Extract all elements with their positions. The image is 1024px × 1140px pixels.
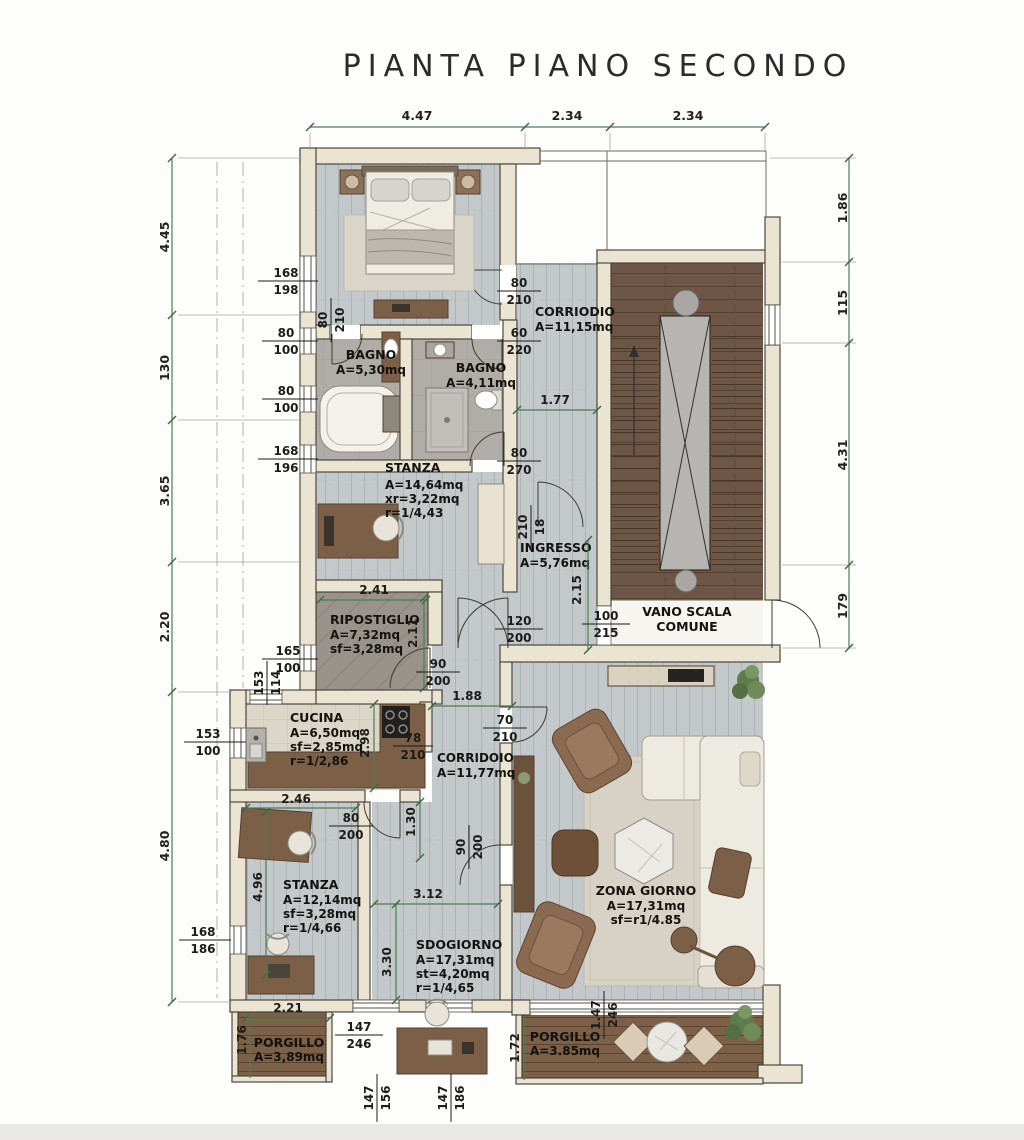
bottom-strip <box>0 1124 1024 1140</box>
wall-bagni-divider <box>400 339 412 460</box>
svg-text:1.30: 1.30 <box>404 807 418 837</box>
svg-text:1.77: 1.77 <box>540 393 570 407</box>
ottoman <box>552 830 598 876</box>
sliding-door-zona <box>530 1000 763 1012</box>
rail-p2-bottom <box>516 1078 763 1084</box>
svg-text:80: 80 <box>343 811 360 825</box>
svg-text:A=11,77mq: A=11,77mq <box>437 766 515 780</box>
floor-plan-page: PIANTA PIANO SECONDO <box>0 0 1024 1140</box>
svg-text:A=17,31mq: A=17,31mq <box>607 899 685 913</box>
svg-text:4.31: 4.31 <box>835 440 850 471</box>
svg-text:2.20: 2.20 <box>157 611 172 642</box>
svg-text:60: 60 <box>511 326 528 340</box>
toilet <box>475 390 502 410</box>
svg-text:186: 186 <box>190 942 215 956</box>
wall-left-upper <box>300 148 316 702</box>
stair-landing-dot-top <box>673 290 699 316</box>
svg-text:246: 246 <box>346 1037 371 1051</box>
wall-bagno-top-b <box>360 325 472 339</box>
svg-text:A=5,76mq: A=5,76mq <box>520 556 590 570</box>
svg-text:246: 246 <box>606 1002 620 1027</box>
soggiorno-laptop <box>428 1040 452 1055</box>
svg-text:18: 18 <box>533 519 547 536</box>
svg-text:r=1/4,65: r=1/4,65 <box>416 981 474 995</box>
svg-text:1.86: 1.86 <box>835 192 850 223</box>
room-label-zona-giorno: ZONA GIORNO A=17,31mq sf=r1/4.85 <box>596 883 696 927</box>
svg-text:179: 179 <box>835 593 850 619</box>
wall-zona-top <box>500 645 780 662</box>
svg-text:100: 100 <box>273 401 298 415</box>
wall-ripostiglio-right-a <box>428 592 442 645</box>
stanza2-laptop <box>268 964 290 978</box>
svg-text:r=1/4,43: r=1/4,43 <box>385 506 443 520</box>
svg-text:SDOGIORNO: SDOGIORNO <box>416 937 502 952</box>
svg-text:168: 168 <box>273 266 298 280</box>
window-ripostiglio <box>300 645 316 671</box>
bagno1-cabinet <box>383 396 400 432</box>
svg-text:1.76: 1.76 <box>235 1025 249 1055</box>
floor-plan-svg: PIANTA PIANO SECONDO <box>0 0 1024 1140</box>
svg-text:A=3.85mq: A=3.85mq <box>530 1044 600 1058</box>
svg-text:st=4,20mq: st=4,20mq <box>416 967 490 981</box>
svg-text:80: 80 <box>278 384 295 398</box>
shower <box>426 388 468 452</box>
svg-text:114: 114 <box>269 670 283 695</box>
svg-text:147: 147 <box>346 1020 371 1034</box>
svg-text:115: 115 <box>835 290 850 316</box>
svg-text:165: 165 <box>275 644 300 658</box>
svg-text:2.34: 2.34 <box>552 108 583 123</box>
svg-text:200: 200 <box>506 631 531 645</box>
svg-text:sf=r1/4.85: sf=r1/4.85 <box>611 913 682 927</box>
svg-text:2.46: 2.46 <box>281 792 311 806</box>
svg-text:210: 210 <box>492 730 517 744</box>
wall-right-mid <box>765 345 780 600</box>
svg-text:4.47: 4.47 <box>402 108 433 123</box>
svg-text:210: 210 <box>516 514 530 539</box>
rail-p1-right <box>326 1012 332 1082</box>
soggiorno-item <box>462 1042 474 1054</box>
svg-text:2.98: 2.98 <box>358 728 372 758</box>
wall-zona-divider-a <box>500 662 512 707</box>
wall-top <box>300 148 540 164</box>
rail-p1-bottom <box>232 1076 332 1082</box>
svg-text:80: 80 <box>316 312 330 329</box>
stanza1-wardrobe <box>478 484 504 564</box>
window-stanza2 <box>230 926 246 954</box>
svg-text:196: 196 <box>273 461 298 475</box>
room-label-porgillo1: PORGILLO A=3,89mq <box>254 1035 324 1064</box>
svg-text:sf=2,85mq: sf=2,85mq <box>290 740 363 754</box>
svg-text:PORGILLO: PORGILLO <box>530 1029 600 1044</box>
svg-text:3.12: 3.12 <box>413 887 443 901</box>
svg-text:r=1/4,66: r=1/4,66 <box>283 921 341 935</box>
wall-cucina-bottom-b <box>400 790 420 802</box>
svg-text:1.72: 1.72 <box>508 1033 522 1063</box>
svg-text:100: 100 <box>273 343 298 357</box>
svg-text:215: 215 <box>593 626 618 640</box>
svg-text:A=11,15mq: A=11,15mq <box>535 320 613 334</box>
svg-text:80: 80 <box>278 326 295 340</box>
svg-text:210: 210 <box>506 293 531 307</box>
wall-stairwell-top <box>597 250 780 263</box>
svg-text:147: 147 <box>362 1085 376 1110</box>
svg-text:70: 70 <box>497 713 514 727</box>
svg-text:153: 153 <box>195 727 220 741</box>
svg-text:90: 90 <box>454 839 468 856</box>
svg-text:2.34: 2.34 <box>673 108 704 123</box>
svg-text:r=1/2,86: r=1/2,86 <box>290 754 348 768</box>
stanza1-monitor <box>324 516 334 546</box>
svg-text:210: 210 <box>333 307 347 332</box>
bagno2-sink <box>434 344 446 356</box>
dresser-item <box>392 304 410 312</box>
svg-text:4.80: 4.80 <box>157 830 172 861</box>
svg-text:270: 270 <box>506 463 531 477</box>
svg-text:A=14,64mq: A=14,64mq <box>385 478 463 492</box>
svg-text:CORRIODIO: CORRIODIO <box>535 304 615 319</box>
svg-text:147: 147 <box>436 1085 450 1110</box>
svg-text:2.21: 2.21 <box>273 1001 303 1015</box>
svg-text:A=6,50mq: A=6,50mq <box>290 726 360 740</box>
svg-text:80: 80 <box>511 276 528 290</box>
wall-pier-left <box>512 1000 530 1015</box>
svg-text:PORGILLO: PORGILLO <box>254 1035 324 1050</box>
sideboard-plant <box>518 772 530 784</box>
window-bedroom <box>300 256 316 312</box>
svg-text:A=17,31mq: A=17,31mq <box>416 953 494 967</box>
svg-text:1.47: 1.47 <box>589 1000 603 1030</box>
svg-text:100: 100 <box>593 609 618 623</box>
svg-text:sf=3,28mq: sf=3,28mq <box>283 907 356 921</box>
svg-text:A=5,30mq: A=5,30mq <box>336 363 406 377</box>
tv <box>668 669 704 682</box>
svg-text:CORRIDOIO: CORRIDOIO <box>437 751 514 765</box>
wall-cucina-top <box>316 690 432 704</box>
svg-text:156: 156 <box>379 1085 393 1110</box>
svg-text:168: 168 <box>273 444 298 458</box>
svg-text:210: 210 <box>400 748 425 762</box>
svg-text:200: 200 <box>471 834 485 859</box>
wall-pier-foot <box>758 1065 802 1083</box>
svg-text:A=7,32mq: A=7,32mq <box>330 628 400 642</box>
svg-text:130: 130 <box>157 355 172 381</box>
svg-text:VANO SCALA: VANO SCALA <box>642 604 732 619</box>
stair-landing-dot-bottom <box>675 570 697 592</box>
svg-text:A=3,89mq: A=3,89mq <box>254 1050 324 1064</box>
kitchen-sink <box>246 728 266 762</box>
svg-text:120: 120 <box>506 614 531 628</box>
svg-text:BAGNO: BAGNO <box>346 347 397 362</box>
wall-bottom-b <box>399 1000 426 1012</box>
svg-text:168: 168 <box>190 925 215 939</box>
lamp-right <box>461 175 475 189</box>
plan-title: PIANTA PIANO SECONDO <box>343 49 854 84</box>
svg-text:78: 78 <box>405 731 422 745</box>
svg-text:A=4,11mq: A=4,11mq <box>446 376 516 390</box>
window-cucina <box>230 728 246 758</box>
svg-text:STANZA: STANZA <box>385 460 441 475</box>
svg-text:153: 153 <box>252 670 266 695</box>
svg-text:90: 90 <box>430 657 447 671</box>
dresser <box>374 300 448 318</box>
svg-text:1.88: 1.88 <box>452 689 482 703</box>
svg-text:220: 220 <box>506 343 531 357</box>
svg-text:BAGNO: BAGNO <box>456 360 507 375</box>
stair-flight-right <box>712 336 763 568</box>
svg-text:4.45: 4.45 <box>157 222 172 253</box>
room-label-porgillo2: PORGILLO A=3.85mq <box>530 1029 600 1058</box>
svg-text:198: 198 <box>273 283 298 297</box>
svg-text:ZONA GIORNO: ZONA GIORNO <box>596 883 696 898</box>
svg-text:CUCINA: CUCINA <box>290 710 344 725</box>
svg-text:3.30: 3.30 <box>380 947 394 977</box>
svg-text:xr=3,22mq: xr=3,22mq <box>385 492 459 506</box>
svg-text:80: 80 <box>511 446 528 460</box>
wall-right-upper <box>765 217 780 305</box>
window-right <box>765 305 780 345</box>
room-label-corridoio2: CORRIDOIO A=11,77mq <box>437 751 515 780</box>
svg-text:2.11: 2.11 <box>406 618 420 648</box>
svg-text:100: 100 <box>195 744 220 758</box>
svg-text:3.65: 3.65 <box>157 476 172 507</box>
stanza2-chair2 <box>267 933 289 955</box>
svg-text:COMUNE: COMUNE <box>656 619 717 634</box>
svg-text:4.96: 4.96 <box>251 872 265 902</box>
lamp-left <box>345 175 359 189</box>
svg-text:200: 200 <box>425 674 450 688</box>
svg-text:186: 186 <box>453 1085 467 1110</box>
window-bottom-1 <box>353 1000 399 1012</box>
svg-text:STANZA: STANZA <box>283 877 339 892</box>
svg-text:sf=3,28mq: sf=3,28mq <box>330 642 403 656</box>
bed <box>362 166 458 274</box>
svg-text:2.41: 2.41 <box>359 583 389 597</box>
svg-text:200: 200 <box>338 828 363 842</box>
svg-text:A=12,14mq: A=12,14mq <box>283 893 361 907</box>
svg-text:2.15: 2.15 <box>570 575 584 605</box>
